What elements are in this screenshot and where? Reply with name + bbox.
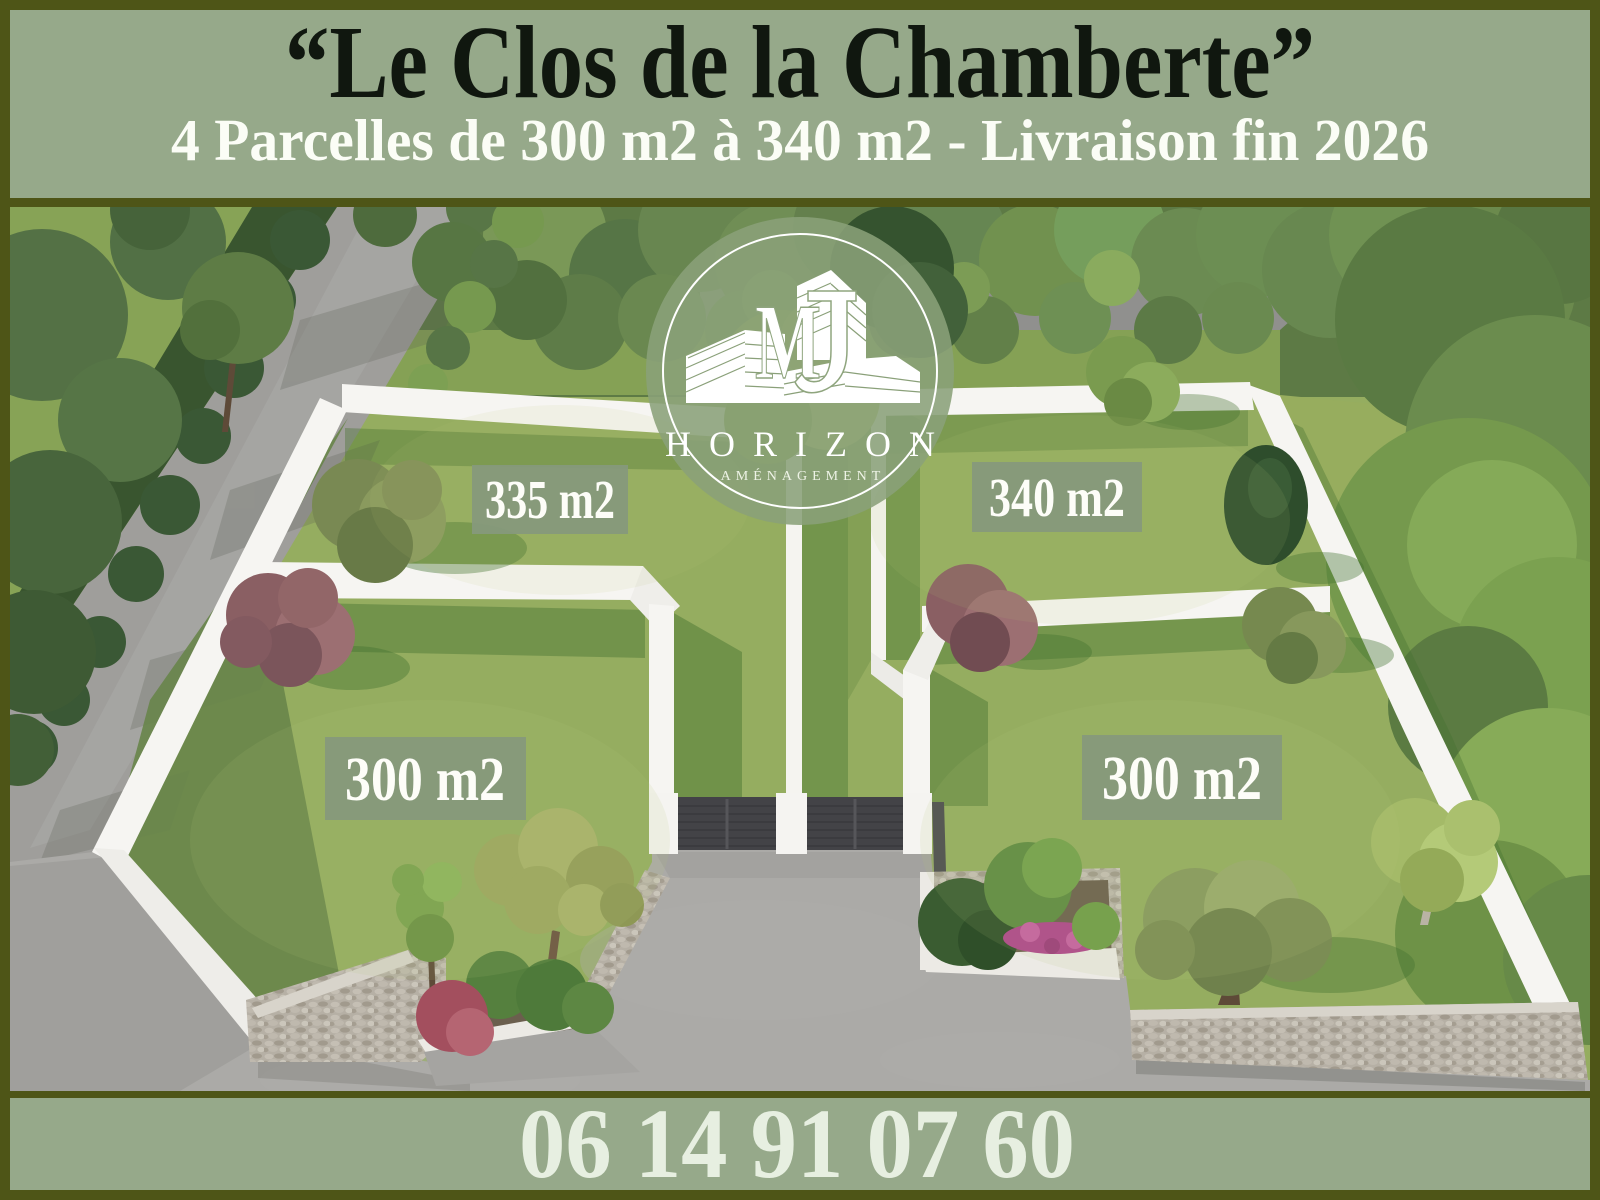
svg-text:4 Parcelles de 300 m2 à 340 m2: 4 Parcelles de 300 m2 à 340 m2 - Livrais… <box>171 107 1429 173</box>
svg-text:335 m2: 335 m2 <box>485 469 615 530</box>
svg-text:340 m2: 340 m2 <box>989 467 1125 528</box>
svg-text:300 m2: 300 m2 <box>345 746 505 814</box>
svg-text:AMÉNAGEMENT: AMÉNAGEMENT <box>721 467 886 484</box>
svg-text:“Le Clos de la Chamberte”: “Le Clos de la Chamberte” <box>285 5 1315 120</box>
svg-text:06 14 91 07 60: 06 14 91 07 60 <box>519 1088 1075 1199</box>
svg-text:HORIZON: HORIZON <box>665 424 953 464</box>
svg-text:300 m2: 300 m2 <box>1102 745 1262 813</box>
